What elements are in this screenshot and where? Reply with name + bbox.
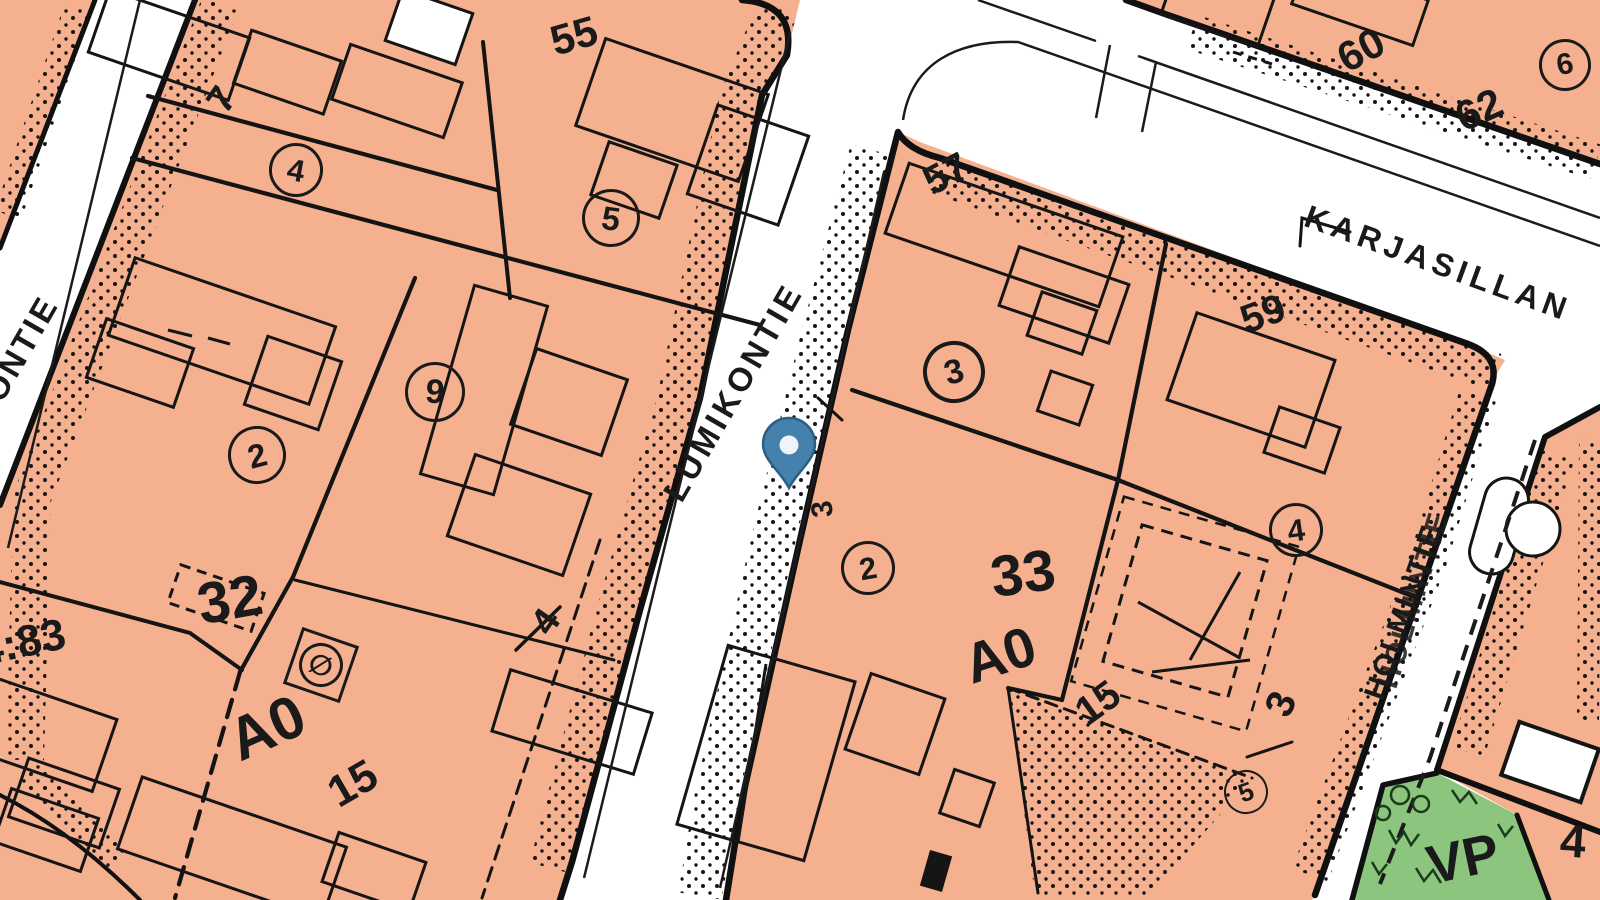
parcel-number-4-corner: 4 [1559, 817, 1588, 865]
pin-center-dot [780, 436, 799, 455]
block-number-32: 32 [193, 566, 267, 634]
parcel-number-3-small: 3 [807, 499, 838, 518]
block-number-33: 33 [987, 541, 1059, 607]
zoning-map: LUMIKONTIE KONTIE KARJASILLAN HOLMINTIE … [0, 0, 1600, 900]
park-label-vp: VP [1422, 825, 1504, 893]
circle-slash-icon: ∅ [293, 637, 349, 693]
